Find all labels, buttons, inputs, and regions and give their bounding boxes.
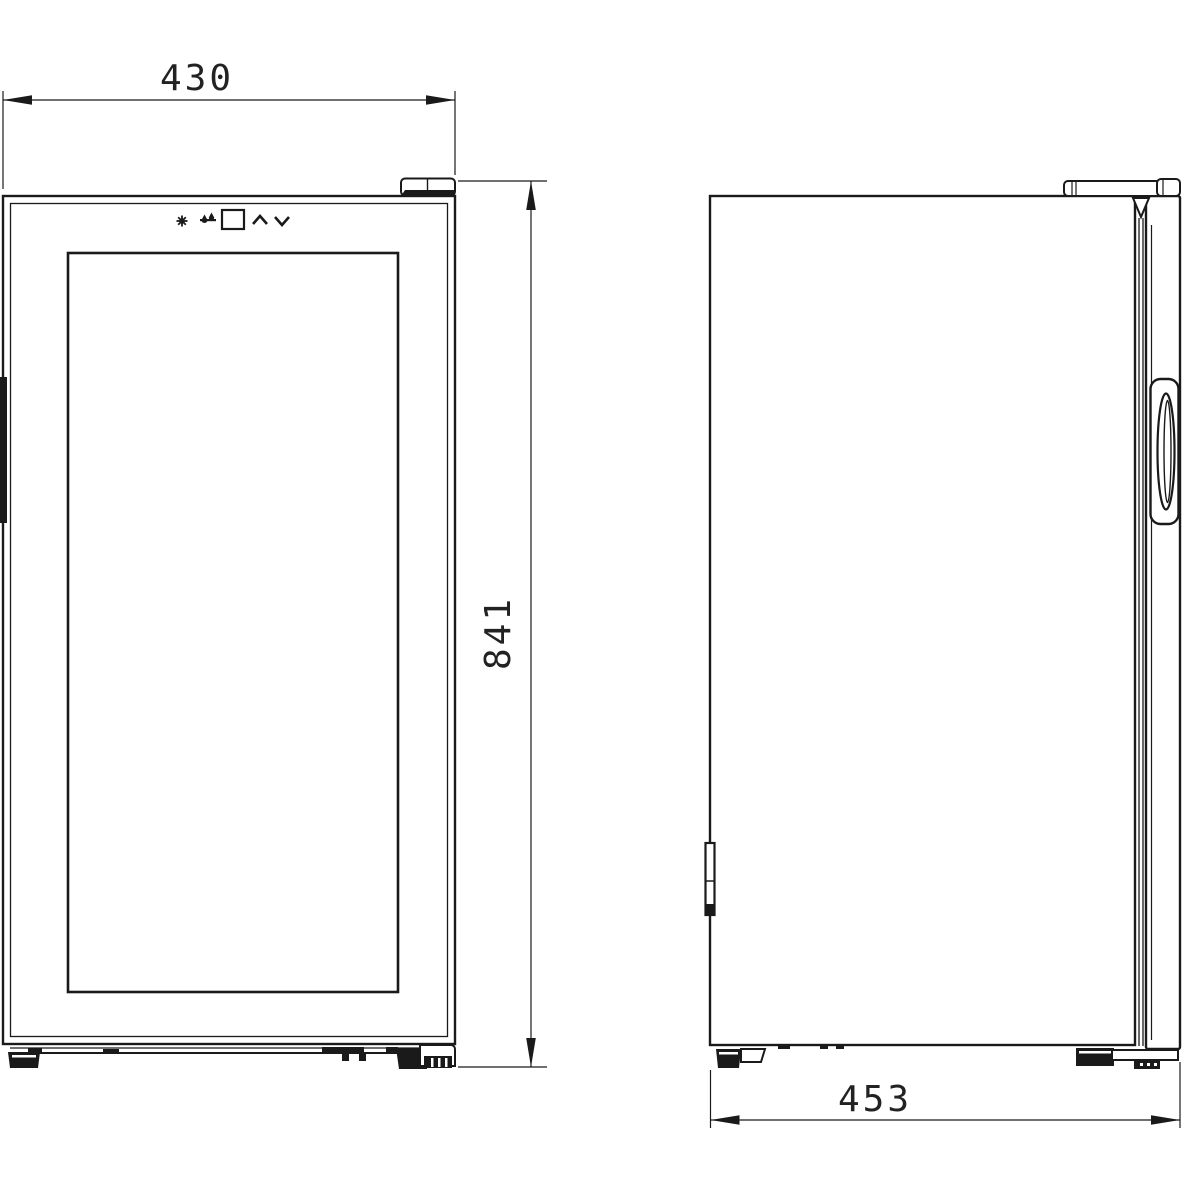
technical-drawing-canvas: 430 841 453	[0, 0, 1188, 1188]
dimension-drawing-page: 430 841 453	[0, 0, 1188, 1188]
dimension-height-value: 841	[478, 596, 519, 670]
display-window	[222, 210, 244, 229]
dimension-width-value: 430	[160, 58, 234, 99]
arrowhead-up	[526, 181, 536, 210]
arrowhead-left	[711, 1115, 740, 1125]
front-left-foot	[8, 1052, 40, 1068]
front-view	[0, 179, 455, 1070]
side-view	[706, 179, 1181, 1069]
arrowhead-right	[1151, 1115, 1180, 1125]
dimension-width: 430	[3, 58, 455, 189]
door-bottom-cap	[1112, 1050, 1178, 1069]
arrowhead-left	[3, 95, 32, 105]
front-glass-window	[68, 253, 398, 992]
left-seal-strip	[0, 377, 7, 523]
front-right-foot	[396, 1045, 455, 1069]
side-front-foot	[1076, 1048, 1114, 1066]
arrowhead-right	[426, 95, 455, 105]
side-rear-foot	[716, 1049, 765, 1068]
side-base	[716, 1045, 1178, 1069]
front-top-hinge	[401, 179, 455, 197]
side-body-outline	[710, 196, 1135, 1045]
door-handle	[1151, 379, 1179, 524]
dimension-depth: 453	[711, 1062, 1181, 1128]
dimension-height: 841	[458, 181, 547, 1067]
rear-spine	[706, 843, 715, 915]
arrowhead-down	[526, 1038, 536, 1067]
dimension-depth-value: 453	[838, 1079, 912, 1120]
front-base	[8, 1045, 455, 1069]
